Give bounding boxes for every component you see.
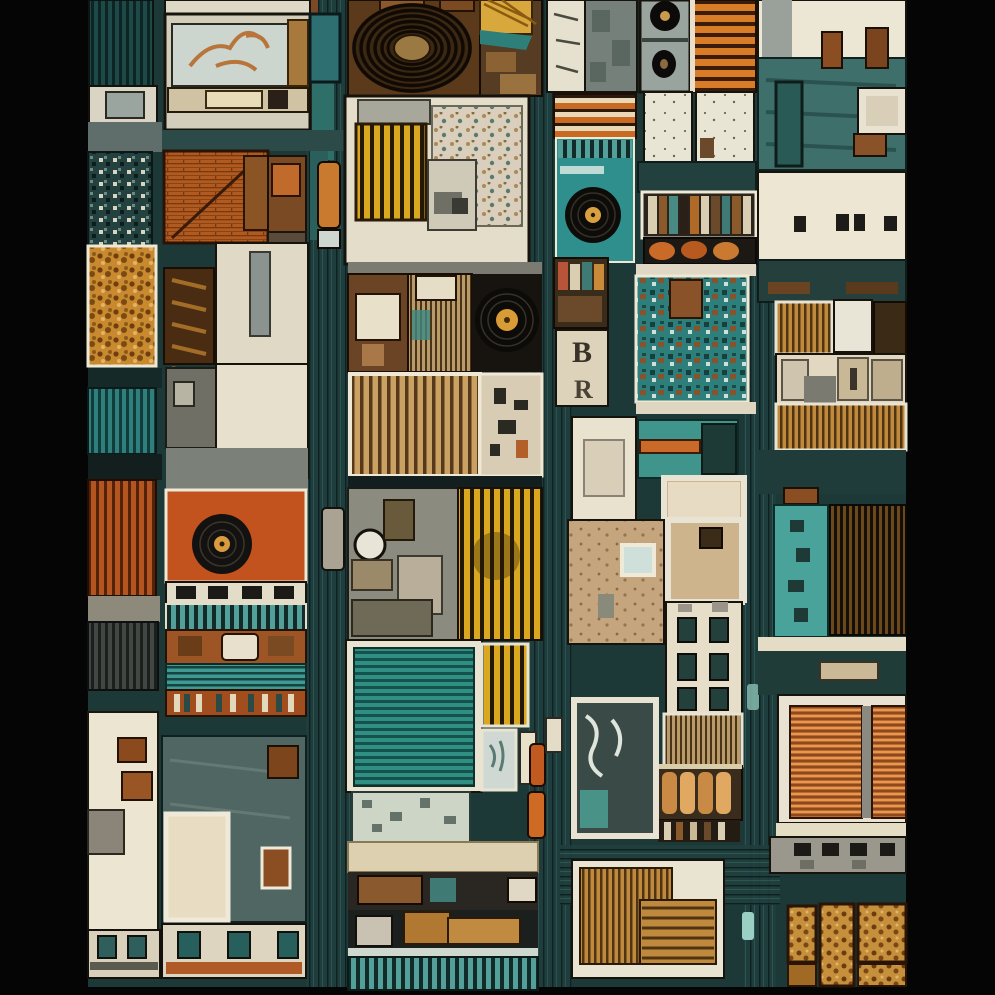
svg-text:B: B xyxy=(572,336,592,369)
svg-text:R: R xyxy=(574,375,593,404)
